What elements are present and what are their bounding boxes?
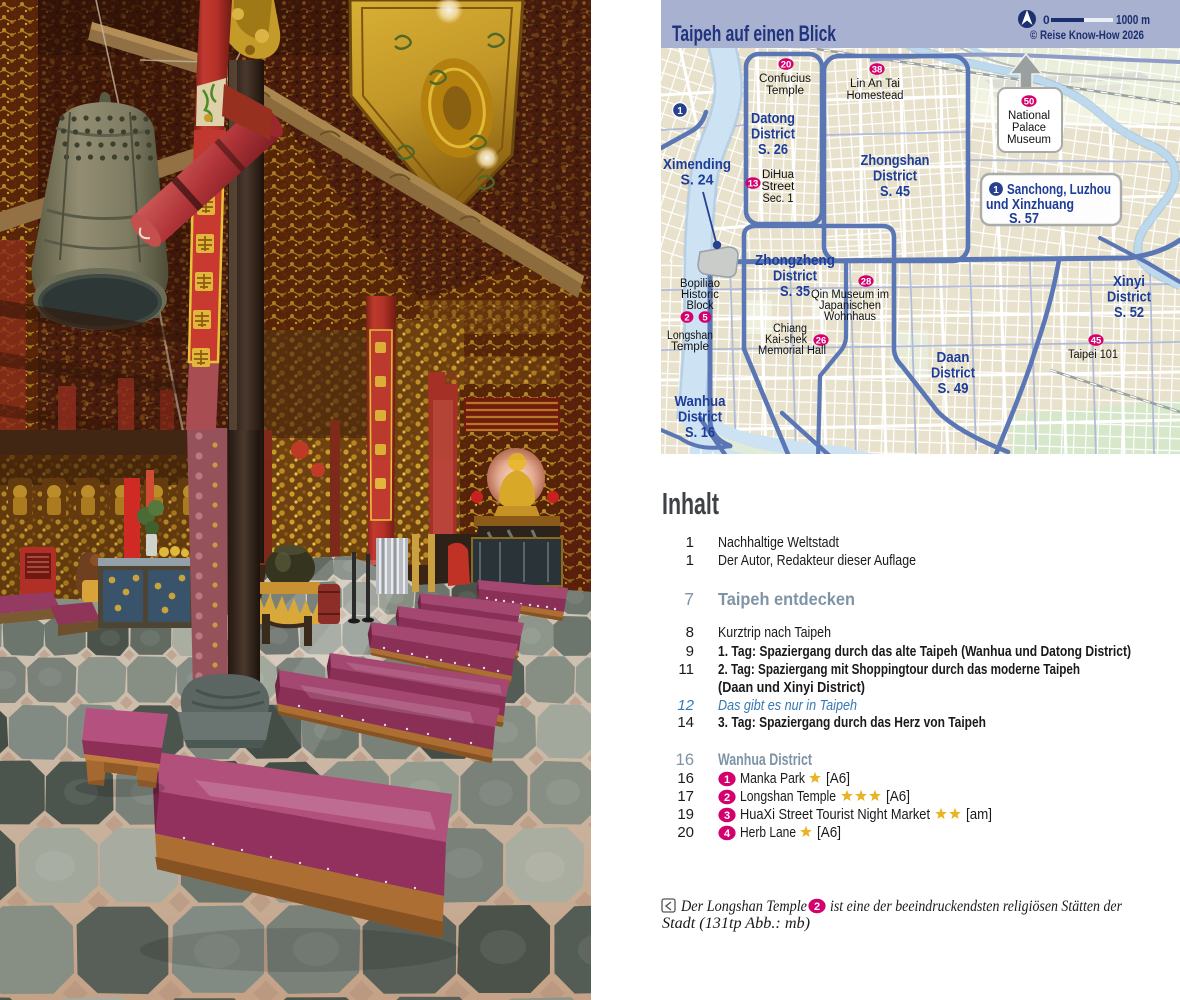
- svg-text:Wanhua District: Wanhua District: [718, 751, 812, 769]
- svg-text:20: 20: [781, 59, 792, 70]
- svg-text:Nachhaltige Weltstadt: Nachhaltige Weltstadt: [718, 534, 840, 551]
- svg-text:HuaXi Street Tourist Night Mar: HuaXi Street Tourist Night Market: [740, 806, 931, 823]
- svg-text:Temple: Temple: [766, 85, 804, 97]
- svg-text:2: 2: [684, 312, 689, 323]
- svg-text:1. Tag: Spaziergang durch das: 1. Tag: Spaziergang durch das alte Taipe…: [718, 643, 1131, 660]
- svg-text:16: 16: [676, 751, 694, 769]
- svg-text:[A6]: [A6]: [826, 770, 850, 787]
- svg-text:DiHua: DiHua: [762, 169, 795, 181]
- svg-text:(Daan und Xinyi District): (Daan und Xinyi District): [718, 679, 865, 696]
- svg-text:S. 16: S. 16: [685, 424, 715, 441]
- svg-text:S. 57: S. 57: [1009, 211, 1039, 227]
- svg-text:2: 2: [724, 792, 730, 804]
- svg-text:28: 28: [861, 276, 872, 287]
- svg-text:District: District: [1107, 289, 1151, 306]
- svg-text:45: 45: [1091, 335, 1102, 346]
- svg-text:Das gibt es nur in Taipeh: Das gibt es nur in Taipeh: [718, 697, 857, 714]
- svg-text:1000 m: 1000 m: [1116, 13, 1150, 27]
- svg-text:9: 9: [686, 643, 694, 660]
- svg-text:Memorial Hall: Memorial Hall: [758, 345, 826, 357]
- svg-text:13: 13: [748, 178, 759, 189]
- svg-text:4: 4: [724, 828, 731, 840]
- svg-text:3. Tag: Spaziergang durch das: 3. Tag: Spaziergang durch das Herz von T…: [718, 714, 986, 731]
- svg-text:Herb Lane: Herb Lane: [740, 824, 796, 841]
- svg-text:8: 8: [686, 624, 694, 641]
- svg-text:3: 3: [724, 810, 730, 822]
- svg-text:Datong: Datong: [751, 110, 795, 127]
- svg-text:Ximending: Ximending: [663, 156, 731, 173]
- svg-text:S. 52: S. 52: [1114, 304, 1144, 321]
- svg-text:[A6]: [A6]: [886, 788, 910, 805]
- svg-text:19: 19: [677, 806, 694, 823]
- svg-text:17: 17: [677, 788, 694, 805]
- svg-text:S. 35: S. 35: [780, 283, 810, 300]
- svg-text:Street: Street: [762, 181, 796, 193]
- svg-text:5: 5: [702, 312, 708, 323]
- svg-text:[am]: [am]: [966, 806, 992, 823]
- svg-text:Der Longshan Temple: Der Longshan Temple: [680, 898, 807, 915]
- svg-text:Lin An Tai: Lin An Tai: [850, 78, 900, 90]
- svg-text:Block: Block: [687, 300, 714, 312]
- svg-text:Stadt (131tp Abb.: mb): Stadt (131tp Abb.: mb): [662, 915, 810, 932]
- svg-text:1: 1: [724, 774, 730, 786]
- svg-text:S. 49: S. 49: [938, 380, 969, 397]
- svg-text:Homestead: Homestead: [847, 90, 904, 102]
- svg-text:Wanhua: Wanhua: [675, 393, 727, 410]
- svg-text:Der Autor, Redakteur dieser Au: Der Autor, Redakteur dieser Auflage: [718, 552, 916, 569]
- svg-text:Longshan Temple: Longshan Temple: [740, 788, 836, 805]
- svg-text:Inhalt: Inhalt: [662, 486, 719, 521]
- svg-text:© Reise Know-How 2026: © Reise Know-How 2026: [1030, 30, 1144, 42]
- svg-text:Temple: Temple: [671, 341, 709, 353]
- svg-text:Sec. 1: Sec. 1: [763, 193, 794, 205]
- svg-text:S. 45: S. 45: [880, 183, 910, 200]
- svg-text:11: 11: [678, 661, 694, 678]
- svg-text:Museum: Museum: [1007, 134, 1051, 146]
- svg-text:1: 1: [686, 552, 694, 569]
- svg-text:District: District: [873, 168, 917, 185]
- svg-text:20: 20: [677, 824, 694, 841]
- svg-text:Confucius: Confucius: [759, 73, 811, 85]
- svg-text:16: 16: [677, 770, 694, 787]
- svg-text:1: 1: [686, 534, 694, 551]
- svg-text:7: 7: [684, 589, 694, 609]
- svg-text:District: District: [773, 268, 817, 285]
- svg-text:50: 50: [1024, 96, 1035, 107]
- svg-text:District: District: [678, 409, 722, 426]
- svg-text:Xinyi: Xinyi: [1113, 273, 1145, 290]
- svg-text:[A6]: [A6]: [817, 824, 841, 841]
- svg-text:38: 38: [872, 64, 883, 75]
- svg-text:14: 14: [677, 714, 694, 731]
- svg-text:Zhongshan: Zhongshan: [861, 152, 930, 169]
- svg-text:Palace: Palace: [1012, 122, 1046, 134]
- svg-text:S. 26: S. 26: [758, 141, 788, 158]
- svg-text:0: 0: [1043, 13, 1050, 27]
- svg-text:Wohnhaus: Wohnhaus: [824, 311, 876, 323]
- svg-text:2: 2: [814, 901, 820, 913]
- svg-text:1: 1: [993, 185, 999, 196]
- svg-text:Manka Park: Manka Park: [740, 770, 805, 787]
- svg-text:District: District: [931, 365, 975, 382]
- svg-text:Taipeh entdecken: Taipeh entdecken: [718, 589, 855, 609]
- svg-text:Taipei 101: Taipei 101: [1068, 349, 1118, 361]
- svg-text:Zhongzheng: Zhongzheng: [755, 252, 835, 269]
- svg-text:National: National: [1008, 110, 1050, 122]
- svg-text:S. 24: S. 24: [681, 172, 715, 189]
- svg-text:Kurztrip nach Taipeh: Kurztrip nach Taipeh: [718, 624, 831, 641]
- svg-text:12: 12: [677, 697, 694, 714]
- svg-text:Taipeh auf einen Blick: Taipeh auf einen Blick: [672, 21, 837, 46]
- svg-text:District: District: [751, 126, 795, 143]
- svg-text:ist eine der beeindruckendsten: ist eine der beeindruckendsten religiöse…: [830, 898, 1123, 915]
- svg-text:Sanchong, Luzhou: Sanchong, Luzhou: [1007, 182, 1111, 198]
- svg-text:Daan: Daan: [937, 349, 970, 366]
- svg-text:1: 1: [677, 106, 683, 117]
- svg-text:2. Tag: Spaziergang mit Shoppi: 2. Tag: Spaziergang mit Shoppingtour dur…: [718, 661, 1080, 678]
